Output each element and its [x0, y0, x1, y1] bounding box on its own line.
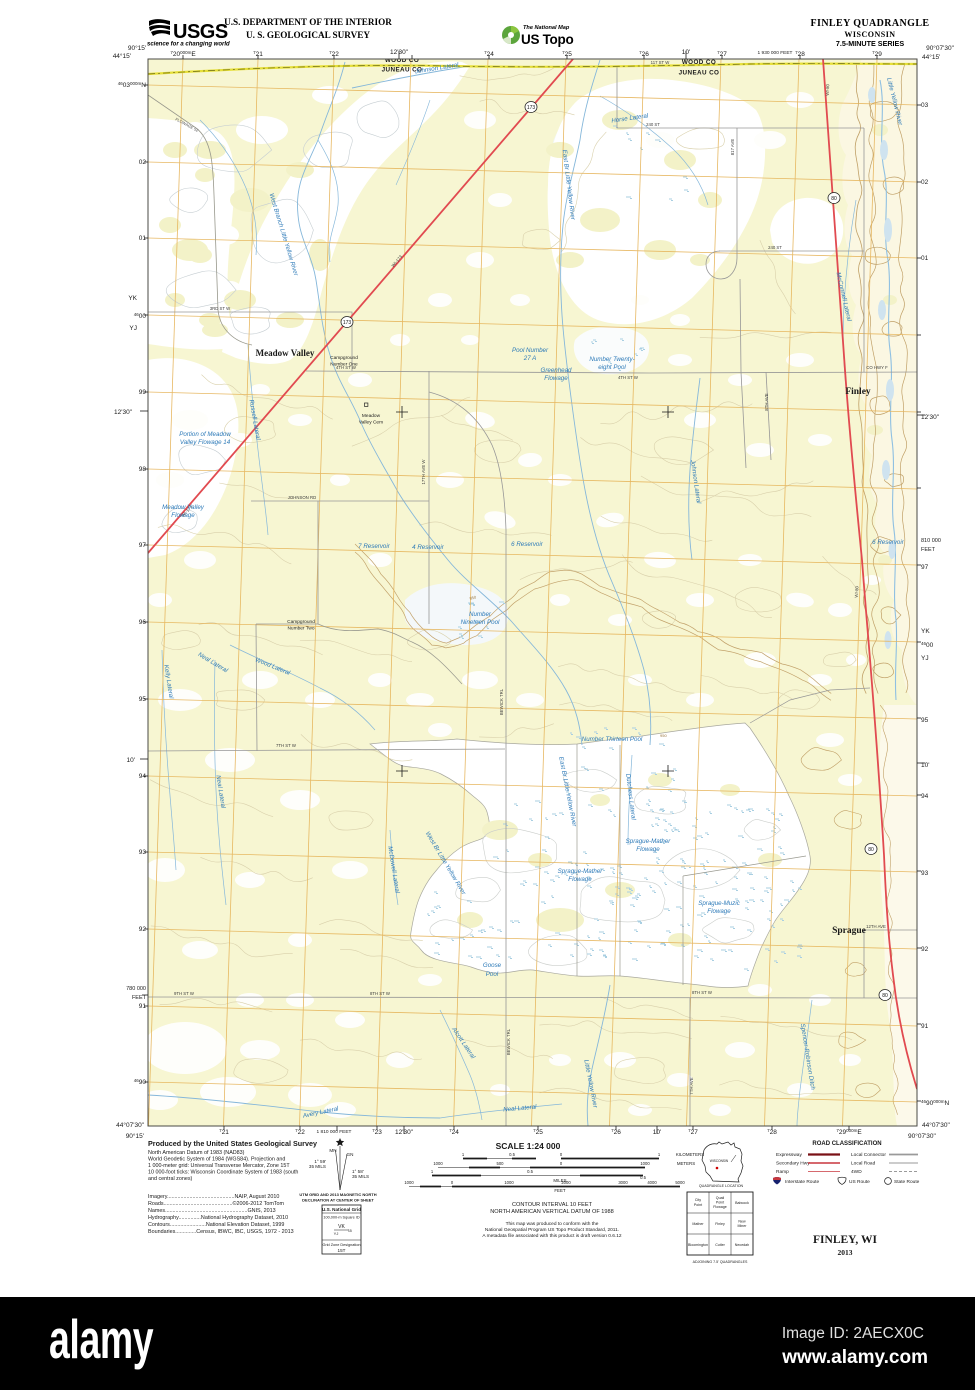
- svg-text:Secondary Hwy: Secondary Hwy: [776, 1161, 810, 1167]
- svg-text:5000: 5000: [675, 1180, 685, 1185]
- svg-text:93: 93: [139, 849, 147, 856]
- svg-text:QUADRANGLE LOCATION: QUADRANGLE LOCATION: [699, 1184, 744, 1188]
- svg-text:Flowage: Flowage: [544, 375, 568, 382]
- svg-text:4 Reservoir: 4 Reservoir: [412, 544, 445, 551]
- svg-text:WOOD CO: WOOD CO: [682, 59, 716, 66]
- svg-text:WISCONSIN: WISCONSIN: [710, 1159, 729, 1163]
- svg-text:Local Road: Local Road: [851, 1161, 876, 1167]
- svg-text:U. S. GEOLOGICAL SURVEY: U. S. GEOLOGICAL SURVEY: [246, 30, 370, 40]
- svg-text:A metadata file associated wit: A metadata file associated with this pro…: [482, 1233, 622, 1239]
- svg-text:WI-80: WI-80: [854, 585, 860, 597]
- svg-text:VK: VK: [338, 1224, 345, 1230]
- svg-text:CONTOUR INTERVAL 10 FEET: CONTOUR INTERVAL 10 FEET: [512, 1202, 593, 1208]
- svg-text:Necedah: Necedah: [735, 1243, 749, 1247]
- svg-text:Bloomington: Bloomington: [688, 1243, 708, 1247]
- svg-text:WI-80: WI-80: [825, 83, 831, 95]
- svg-text:44°15': 44°15': [922, 53, 940, 61]
- svg-text:National Geospatial Program US: National Geospatial Program US Topo Prod…: [485, 1227, 619, 1233]
- svg-text:US Topo: US Topo: [521, 32, 573, 47]
- svg-text:Flowage: Flowage: [713, 1205, 727, 1209]
- svg-text:Number Thirteen Pool: Number Thirteen Pool: [582, 736, 643, 743]
- svg-text:U.S. National Grid: U.S. National Grid: [322, 1207, 361, 1212]
- svg-text:Miner: Miner: [738, 1224, 748, 1228]
- svg-text:44°07'30": 44°07'30": [922, 1121, 951, 1129]
- svg-text:Names.........................: Names...................................…: [148, 1208, 276, 1214]
- svg-text:173: 173: [343, 320, 352, 326]
- svg-text:FEET: FEET: [554, 1188, 566, 1193]
- svg-text:90°07'30": 90°07'30": [926, 44, 955, 52]
- svg-text:Pool: Pool: [486, 971, 499, 978]
- svg-text:Finley: Finley: [715, 1222, 725, 1226]
- svg-text:100,000-m Square ID: 100,000-m Square ID: [323, 1216, 360, 1220]
- svg-text:www.alamy.com: www.alamy.com: [781, 1347, 928, 1368]
- svg-text:01: 01: [921, 255, 929, 262]
- svg-text:93: 93: [921, 870, 929, 877]
- svg-text:State Route: State Route: [894, 1179, 920, 1185]
- svg-text:4TH ST W: 4TH ST W: [336, 365, 357, 370]
- svg-text:91: 91: [139, 1003, 147, 1010]
- svg-text:35 MILS: 35 MILS: [352, 1174, 369, 1179]
- svg-text:METERS: METERS: [677, 1161, 695, 1166]
- svg-text:90°15': 90°15': [126, 1132, 144, 1140]
- svg-text:Number: Number: [469, 611, 492, 618]
- svg-text:Produced by the United States: Produced by the United States Geological…: [148, 1139, 317, 1148]
- svg-text:KILOMETERS: KILOMETERS: [676, 1152, 704, 1157]
- svg-text:Flowage: Flowage: [171, 512, 195, 519]
- svg-text:Hydrography...............Nati: Hydrography...............National Hydro…: [148, 1215, 288, 1221]
- svg-text:9TH ST W: 9TH ST W: [174, 991, 195, 996]
- svg-text:01: 01: [139, 235, 147, 242]
- svg-text:240 ST: 240 ST: [768, 245, 782, 250]
- svg-text:97: 97: [921, 564, 929, 571]
- svg-text:Portion of Meadow: Portion of Meadow: [179, 431, 231, 438]
- svg-text:YJ: YJ: [129, 325, 137, 332]
- svg-text:02: 02: [139, 159, 147, 166]
- svg-text:Flowage: Flowage: [707, 908, 731, 915]
- svg-text:10': 10': [127, 757, 135, 764]
- svg-text:Interstate Route: Interstate Route: [785, 1179, 819, 1185]
- svg-text:1000: 1000: [504, 1180, 514, 1185]
- svg-text:03: 03: [921, 102, 929, 109]
- svg-text:240 ST: 240 ST: [646, 122, 660, 127]
- svg-text:8TH ST W: 8TH ST W: [370, 991, 391, 996]
- svg-text:950: 950: [660, 733, 667, 738]
- svg-text:173: 173: [527, 105, 536, 111]
- svg-text:7TH AVE: 7TH AVE: [689, 1077, 694, 1094]
- svg-text:Roads.........................: Roads...................................…: [148, 1200, 285, 1207]
- svg-text:JOHNSON RD: JOHNSON RD: [288, 495, 316, 500]
- svg-text:CO HWY F: CO HWY F: [866, 365, 888, 370]
- svg-text:USGS: USGS: [173, 21, 228, 43]
- svg-text:4TH ST W: 4TH ST W: [618, 375, 639, 380]
- svg-text:FEET: FEET: [132, 995, 147, 1001]
- svg-text:U.S. DEPARTMENT OF THE INTERIO: U.S. DEPARTMENT OF THE INTERIOR: [224, 17, 392, 27]
- svg-text:94: 94: [139, 773, 147, 780]
- svg-text:7 Reservoir: 7 Reservoir: [358, 543, 391, 550]
- svg-text:3RD ST W: 3RD ST W: [210, 306, 231, 311]
- svg-text:0.5: 0.5: [509, 1152, 515, 1157]
- svg-text:City: City: [695, 1198, 701, 1202]
- svg-text:98: 98: [139, 466, 147, 473]
- svg-text:8TH AVE: 8TH AVE: [764, 393, 769, 410]
- svg-text:817 AVE: 817 AVE: [730, 139, 735, 156]
- svg-text:44°07'30": 44°07'30": [116, 1121, 145, 1129]
- svg-text:ROAD CLASSIFICATION: ROAD CLASSIFICATION: [812, 1141, 881, 1147]
- svg-text:FEET: FEET: [921, 547, 936, 553]
- svg-text:Campground: Campground: [287, 619, 315, 625]
- svg-text:500: 500: [497, 1161, 505, 1166]
- svg-text:4000: 4000: [647, 1180, 657, 1185]
- svg-text:95: 95: [139, 696, 147, 703]
- svg-text:WISCONSIN: WISCONSIN: [844, 30, 895, 39]
- svg-text:2013: 2013: [838, 1248, 853, 1257]
- svg-text:YJ: YJ: [334, 1231, 339, 1236]
- svg-text:Cutler: Cutler: [715, 1243, 725, 1247]
- svg-text:YK: YK: [128, 295, 137, 302]
- svg-text:1 930 000 FEET: 1 930 000 FEET: [758, 50, 793, 56]
- svg-text:15: 15: [348, 1229, 352, 1233]
- svg-text:1000: 1000: [404, 1180, 414, 1185]
- svg-text:New: New: [738, 1220, 746, 1224]
- svg-text:96: 96: [139, 619, 147, 626]
- svg-text:ADJOINING 7.5' QUADRANGLES: ADJOINING 7.5' QUADRANGLES: [693, 1260, 748, 1264]
- svg-text:JUNEAU CO: JUNEAU CO: [679, 70, 720, 77]
- svg-text:Flowage: Flowage: [568, 876, 592, 883]
- svg-text:02: 02: [921, 179, 929, 186]
- svg-text:This map was produced to confo: This map was produced to conform with th…: [506, 1221, 599, 1227]
- svg-text:6 Reservoir: 6 Reservoir: [872, 539, 905, 546]
- svg-text:Flowage: Flowage: [636, 846, 660, 853]
- svg-text:YK: YK: [921, 628, 930, 635]
- svg-text:Imagery.......................: Imagery.................................…: [148, 1194, 279, 1200]
- svg-text:North American Datum of 1983 (: North American Datum of 1983 (NAD83): [148, 1150, 245, 1156]
- svg-text:99: 99: [139, 389, 147, 396]
- svg-text:UTM GRID AND 2013 MAGNETIC NOR: UTM GRID AND 2013 MAGNETIC NORTH: [299, 1192, 376, 1197]
- svg-text:NORTH AMERICAN VERTICAL DATUM: NORTH AMERICAN VERTICAL DATUM OF 1988: [490, 1209, 614, 1215]
- svg-text:94: 94: [921, 793, 929, 800]
- svg-text:Local Connector: Local Connector: [851, 1152, 886, 1158]
- svg-text:1 000-meter grid: Universal Tr: 1 000-meter grid: Universal Transverse M…: [148, 1163, 290, 1169]
- svg-text:Point: Point: [694, 1203, 702, 1207]
- svg-text:12'30": 12'30": [114, 409, 133, 416]
- svg-text:95: 95: [921, 717, 929, 724]
- svg-text:97: 97: [139, 542, 147, 549]
- svg-text:Meadow: Meadow: [362, 413, 381, 419]
- svg-text:Number Two: Number Two: [287, 626, 314, 632]
- svg-text:World Geodetic System of 1984: World Geodetic System of 1984 (WGS84). P…: [148, 1157, 285, 1163]
- svg-text:alamy: alamy: [49, 1309, 154, 1370]
- svg-text:Sprague-Muzic: Sprague-Muzic: [698, 900, 741, 907]
- svg-text:Boundaries..............Census: Boundaries..............Census, IBWC, IB…: [148, 1229, 294, 1235]
- svg-text:Contours......................: Contours........................National…: [148, 1222, 284, 1228]
- svg-text:810 000: 810 000: [921, 538, 941, 544]
- svg-text:The National Map: The National Map: [523, 25, 570, 31]
- svg-text:91: 91: [921, 1023, 929, 1030]
- svg-text:44°15': 44°15': [113, 52, 131, 60]
- svg-text:Babcock: Babcock: [735, 1201, 749, 1205]
- svg-text:92: 92: [139, 926, 147, 933]
- svg-text:Finley: Finley: [845, 387, 871, 397]
- svg-text:80: 80: [868, 847, 874, 853]
- svg-text:Valley Flowage 14: Valley Flowage 14: [180, 439, 231, 446]
- svg-text:117 ST W: 117 ST W: [651, 60, 671, 65]
- svg-text:science for a changing world: science for a changing world: [147, 42, 230, 48]
- svg-text:Point: Point: [716, 1201, 724, 1205]
- svg-text:Nineteen Pool: Nineteen Pool: [461, 619, 500, 626]
- svg-text:8TH ST W: 8TH ST W: [692, 990, 713, 995]
- svg-text:7TH ST W: 7TH ST W: [276, 743, 297, 748]
- svg-text:FINLEY QUADRANGLE: FINLEY QUADRANGLE: [811, 18, 930, 29]
- svg-text:Image ID: 2AECX0C: Image ID: 2AECX0C: [782, 1325, 924, 1342]
- svg-text:1 810 000 FEET: 1 810 000 FEET: [317, 1129, 352, 1135]
- svg-text:1000: 1000: [433, 1161, 443, 1166]
- svg-text:Valley Cem: Valley Cem: [359, 420, 383, 426]
- svg-text:12TH AVE: 12TH AVE: [866, 924, 886, 929]
- svg-text:GN: GN: [347, 1152, 354, 1157]
- svg-text:Grid Zone Designation: Grid Zone Designation: [323, 1243, 361, 1247]
- svg-text:3000: 3000: [618, 1180, 628, 1185]
- svg-text:Mather: Mather: [692, 1222, 704, 1226]
- svg-text:Meadow Valley: Meadow Valley: [162, 504, 205, 511]
- svg-text:DECLINATION AT CENTER OF SHEET: DECLINATION AT CENTER OF SHEET: [302, 1198, 374, 1203]
- svg-text:YJ: YJ: [921, 655, 929, 662]
- svg-text:BEWICK TRL: BEWICK TRL: [499, 688, 504, 715]
- svg-text:35 MILS: 35 MILS: [309, 1164, 326, 1169]
- svg-text:Pool Number: Pool Number: [512, 347, 549, 354]
- svg-text:Meadow Valley: Meadow Valley: [256, 348, 315, 358]
- svg-text:27 A: 27 A: [523, 355, 537, 362]
- svg-text:SCALE 1:24 000: SCALE 1:24 000: [496, 1141, 561, 1151]
- svg-text:eight Pool: eight Pool: [598, 364, 626, 371]
- svg-text:90°15': 90°15': [128, 44, 146, 52]
- svg-text:90°07'30": 90°07'30": [908, 1132, 937, 1140]
- svg-text:US Route: US Route: [849, 1179, 870, 1185]
- svg-text:15T: 15T: [338, 1248, 346, 1253]
- svg-text:and central zones): and central zones): [148, 1176, 193, 1182]
- svg-text:80: 80: [882, 993, 888, 999]
- svg-text:MN: MN: [329, 1148, 336, 1153]
- svg-text:92: 92: [921, 946, 929, 953]
- svg-text:Number Twenty-: Number Twenty-: [589, 356, 634, 363]
- svg-text:Campground: Campground: [330, 355, 358, 361]
- svg-text:10 000-foot ticks: Wisconsin C: 10 000-foot ticks: Wisconsin Coordinate …: [148, 1170, 298, 1176]
- svg-text:1000: 1000: [640, 1161, 650, 1166]
- svg-text:2000: 2000: [561, 1180, 571, 1185]
- svg-text:Greenhead: Greenhead: [541, 367, 573, 374]
- svg-text:Sprague-Mather: Sprague-Mather: [558, 868, 604, 875]
- svg-text:80: 80: [831, 196, 837, 202]
- svg-text:BEWICK TRL: BEWICK TRL: [506, 1028, 511, 1055]
- svg-text:0.5: 0.5: [527, 1169, 533, 1174]
- svg-text:Goose: Goose: [483, 962, 502, 969]
- svg-text:4WD: 4WD: [851, 1169, 862, 1175]
- svg-text:7.5-MINUTE SERIES: 7.5-MINUTE SERIES: [836, 39, 905, 48]
- svg-text:FINLEY, WI: FINLEY, WI: [813, 1234, 877, 1246]
- svg-text:Sprague: Sprague: [832, 926, 866, 936]
- svg-text:Quail: Quail: [716, 1196, 725, 1200]
- svg-text:Ramp: Ramp: [776, 1169, 789, 1175]
- svg-text:6 Reservoir: 6 Reservoir: [511, 541, 544, 548]
- svg-text:Sprague-Mather: Sprague-Mather: [626, 838, 672, 845]
- svg-text:Expressway: Expressway: [776, 1152, 802, 1158]
- svg-text:780 000: 780 000: [126, 986, 146, 992]
- svg-text:17TH AVE W: 17TH AVE W: [421, 459, 426, 485]
